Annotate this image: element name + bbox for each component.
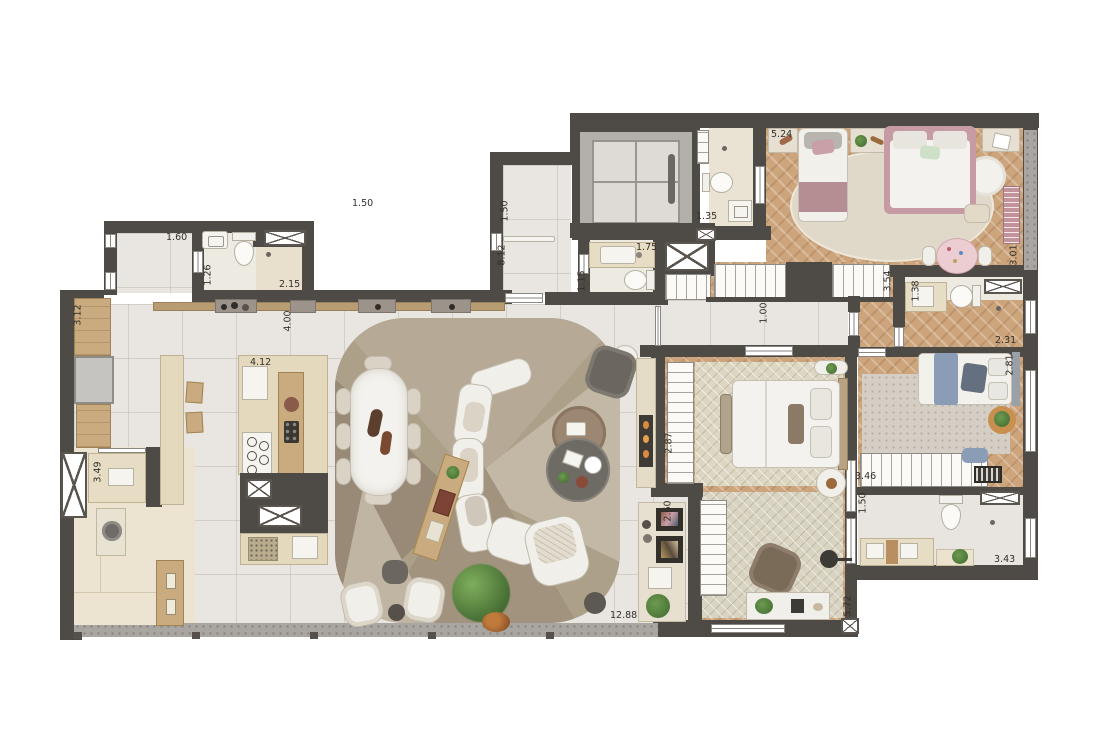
dimension-label: 2.31 bbox=[995, 336, 1016, 346]
dimension-label: 1.60 bbox=[166, 233, 187, 243]
dimension-label: 1.15 bbox=[578, 270, 588, 291]
dimension-labels-layer: 1.601.262.153.124.004.123.491.501.508.12… bbox=[0, 0, 1100, 750]
dimension-label: 2.15 bbox=[279, 280, 300, 290]
dimension-label: 2.60 bbox=[664, 500, 674, 521]
dimension-label: 3.54 bbox=[884, 270, 894, 291]
dimension-label: 1.00 bbox=[760, 302, 770, 323]
dimension-label: 1.38 bbox=[912, 280, 922, 301]
dimension-label: 4.00 bbox=[284, 310, 294, 331]
dimension-label: 8.12 bbox=[498, 244, 508, 265]
floor-plan: 1.601.262.153.124.004.123.491.501.508.12… bbox=[0, 0, 1100, 750]
dimension-label: 2.87 bbox=[665, 432, 675, 453]
dimension-label: 1.26 bbox=[204, 264, 214, 285]
dimension-label: 3.49 bbox=[94, 461, 104, 482]
dimension-label: 4.12 bbox=[250, 358, 271, 368]
dimension-label: 5.24 bbox=[771, 130, 792, 140]
dimension-label: 3.46 bbox=[855, 472, 876, 482]
dimension-label: 3.12 bbox=[74, 304, 84, 325]
dimension-label: 5.72 bbox=[844, 595, 854, 616]
dimension-label: 1.50 bbox=[859, 492, 869, 513]
dimension-label: 3.43 bbox=[994, 555, 1015, 565]
dimension-label: 2.81 bbox=[1006, 354, 1016, 375]
dimension-label: 1.50 bbox=[501, 200, 511, 221]
dimension-label: 3.01 bbox=[1010, 244, 1020, 265]
dimension-label: 12.88 bbox=[610, 611, 637, 621]
dimension-label: 1.35 bbox=[696, 212, 717, 222]
dimension-label: 1.75 bbox=[636, 243, 657, 253]
dimension-label: 1.50 bbox=[352, 199, 373, 209]
